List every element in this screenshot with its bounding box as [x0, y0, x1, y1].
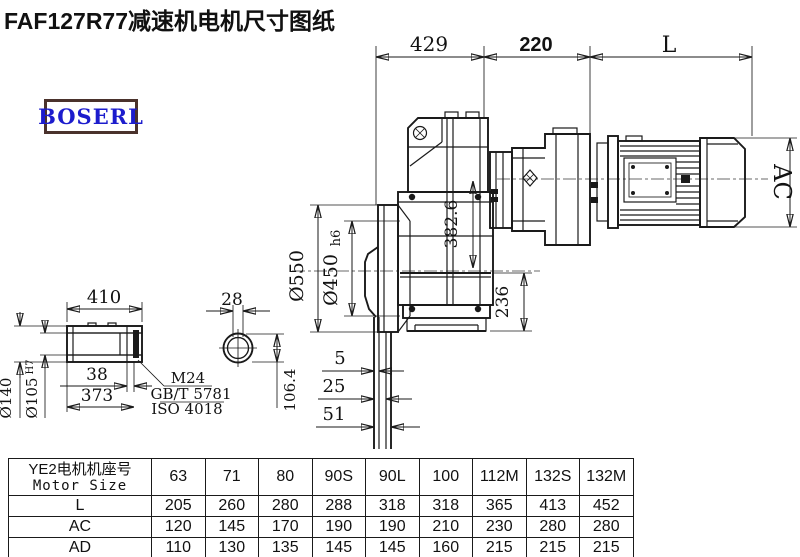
dim-106-4: 106.4 — [281, 369, 299, 412]
drawing-page: FAF127R77减速机电机尺寸图纸 BOSERL 429 — [0, 0, 800, 557]
motor-outline — [618, 136, 745, 227]
table-cell: 452 — [580, 496, 634, 517]
r-unit-outline — [512, 128, 618, 245]
table-cell: 365 — [473, 496, 527, 517]
table-col-80: 80 — [259, 459, 313, 496]
table-col-132s: 132S — [526, 459, 580, 496]
dim-d105: Ø105 — [23, 378, 41, 419]
dim-L: L — [662, 33, 677, 58]
dim-51: 51 — [323, 404, 346, 425]
dimension-heights: 382.6 236 — [442, 181, 532, 331]
shaft-detail: 410 Ø140 Ø105 H7 38 373 — [0, 287, 232, 418]
table-col-100: 100 — [419, 459, 473, 496]
dim-ac: AC — [768, 163, 796, 200]
table-col-71: 71 — [205, 459, 259, 496]
table-cell: 130 — [205, 538, 259, 557]
table-cell: 215 — [473, 538, 527, 557]
dim-28: 28 — [221, 290, 243, 310]
dim-d450: Ø450 — [320, 254, 342, 306]
dim-382-6: 382.6 — [442, 200, 462, 249]
dim-d140: Ø140 — [0, 378, 15, 419]
table-cell: 190 — [366, 517, 420, 538]
table-cell: 190 — [312, 517, 366, 538]
table-col-112m: 112M — [473, 459, 527, 496]
table-cell: 215 — [580, 538, 634, 557]
table-cell: 135 — [259, 538, 313, 557]
table-header-en: Motor Size — [9, 478, 151, 494]
dim-5: 5 — [334, 348, 345, 369]
table-col-90s: 90S — [312, 459, 366, 496]
table-cell: 230 — [473, 517, 527, 538]
dim-220: 220 — [519, 34, 552, 56]
table-cell: 318 — [419, 496, 473, 517]
table-cell: 110 — [152, 538, 206, 557]
row-label-AC: AC — [9, 517, 152, 538]
table-header-motor-size: YE2电机机座号 Motor Size — [9, 459, 152, 496]
row-label-AD: AD — [9, 538, 152, 557]
table-cell: 288 — [312, 496, 366, 517]
table-cell: 145 — [205, 517, 259, 538]
table-cell: 280 — [580, 517, 634, 538]
table-cell: 318 — [366, 496, 420, 517]
table-cell: 170 — [259, 517, 313, 538]
table-header-row: YE2电机机座号 Motor Size 63 71 80 90S 90L 100… — [9, 459, 634, 496]
table-cell: 145 — [312, 538, 366, 557]
dim-38: 38 — [86, 365, 108, 385]
table-row-AC: AC 120 145 170 190 190 210 230 280 280 — [9, 517, 634, 538]
dimension-ac: AC — [710, 138, 797, 227]
table-cell: 280 — [526, 517, 580, 538]
dim-d105-tol: H7 — [25, 359, 36, 374]
dimension-face-offsets: 5 25 51 — [316, 348, 420, 427]
dimension-flange-diameters: Ø550 Ø450 h6 — [286, 205, 400, 332]
dim-410: 410 — [87, 287, 121, 308]
table-cell: 120 — [152, 517, 206, 538]
terminal-box — [624, 158, 676, 202]
table-cell: 210 — [419, 517, 473, 538]
table-row-L: L 205 260 280 288 318 318 365 413 452 — [9, 496, 634, 517]
table-header-cn: YE2电机机座号 — [9, 461, 151, 478]
dimension-top-chain: 429 220 L — [376, 32, 752, 245]
table-cell: 280 — [259, 496, 313, 517]
table-row-AD: AD 110 130 135 145 145 160 215 215 215 — [9, 538, 634, 557]
table-cell: 160 — [419, 538, 473, 557]
table-cell: 145 — [366, 538, 420, 557]
table-cell: 215 — [526, 538, 580, 557]
dim-d550: Ø550 — [286, 250, 308, 302]
row-label-L: L — [9, 496, 152, 517]
dim-236: 236 — [493, 286, 513, 318]
table-col-132m: 132M — [580, 459, 634, 496]
table-col-63: 63 — [152, 459, 206, 496]
dim-d450-tol: h6 — [329, 230, 344, 247]
label-iso-4018: ISO 4018 — [151, 400, 222, 418]
output-flange — [378, 205, 410, 332]
dim-373: 373 — [81, 386, 113, 406]
motor-size-table: YE2电机机座号 Motor Size 63 71 80 90S 90L 100… — [8, 458, 634, 557]
technical-drawing: 429 220 L — [0, 0, 800, 458]
table-cell: 413 — [526, 496, 580, 517]
table-cell: 260 — [205, 496, 259, 517]
table-col-90l: 90L — [366, 459, 420, 496]
dim-25: 25 — [323, 376, 346, 397]
dim-429: 429 — [410, 32, 448, 56]
table-cell: 205 — [152, 496, 206, 517]
